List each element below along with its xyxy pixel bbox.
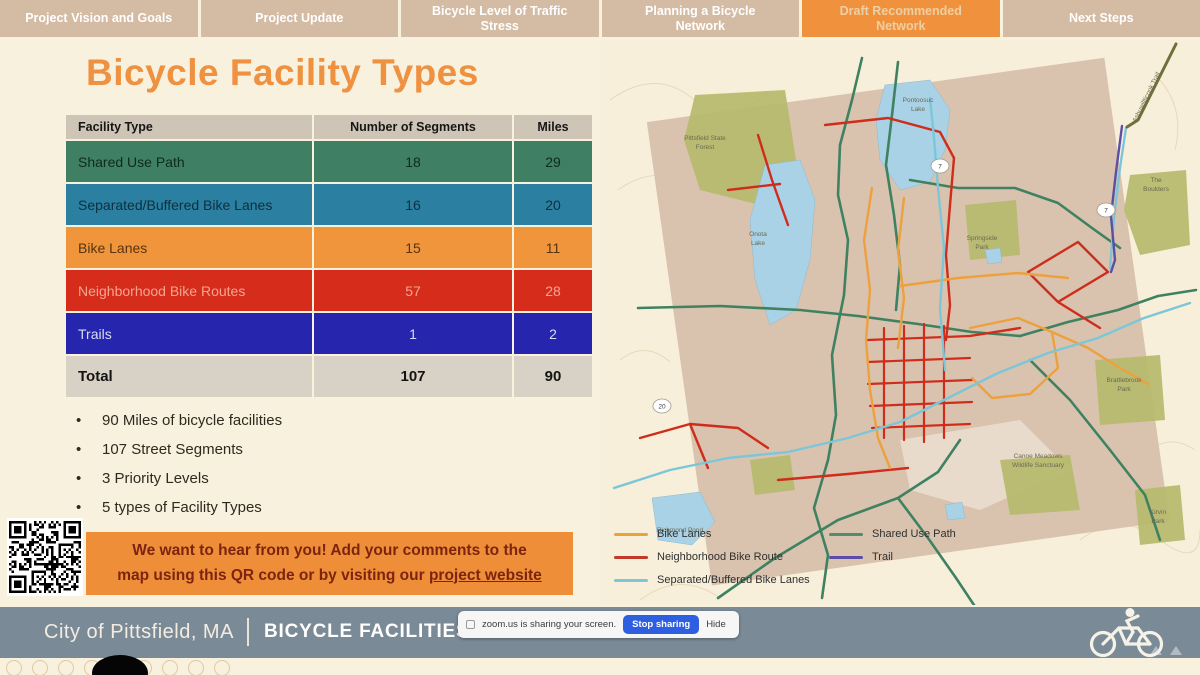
miles-value: 20	[514, 184, 592, 225]
legend-label: Trail	[872, 551, 893, 563]
map-place-label: Pittsfield State	[684, 135, 726, 142]
map-place-label: Lake	[911, 106, 925, 113]
facility-label: Bike Lanes	[66, 227, 312, 268]
miles-value: 29	[514, 141, 592, 182]
legend-label: Bike Lanes	[657, 528, 711, 540]
legend-label: Shared Use Path	[872, 528, 956, 540]
qr-code	[7, 518, 83, 596]
feedback-callout: We want to hear from you! Add your comme…	[86, 532, 573, 595]
table-row: Separated/Buffered Bike Lanes 16 20	[66, 184, 592, 225]
legend-swatch-shared-use-path	[829, 533, 863, 536]
legend-label: Neighborhood Bike Route	[657, 551, 783, 563]
tab-bicycle-level-of-traffic-stress[interactable]: Bicycle Level of Traffic Stress	[401, 0, 599, 37]
callout-line1: We want to hear from you! Add your comme…	[132, 539, 526, 563]
screen-share-icon	[466, 620, 475, 629]
legend-label: Separated/Buffered Bike Lanes	[657, 574, 810, 586]
bicycle-network-map: 7720Pittsfield StateForestPontoosucLakeO…	[600, 40, 1200, 605]
hide-banner-button[interactable]: Hide	[706, 619, 726, 630]
legend-item: Bike Lanes	[614, 528, 829, 540]
map-place-label: Forest	[696, 144, 715, 151]
tab-draft-recommended-network[interactable]: Draft Recommended Network	[802, 0, 1000, 37]
footer-city-name: City of Pittsfield, MA	[44, 621, 234, 644]
table-header-row: Facility Type Number of Segments Miles	[66, 115, 592, 139]
map-place-label: Park	[1151, 518, 1165, 525]
bullet-item: 3 Priority Levels	[76, 470, 282, 487]
route-shield-number: 7	[1104, 207, 1108, 214]
slide-nav-tabbar: Project Vision and Goals Project Update …	[0, 0, 1200, 37]
tab-planning-a-bicycle-network[interactable]: Planning a Bicycle Network	[602, 0, 800, 37]
tab-project-vision-and-goals[interactable]: Project Vision and Goals	[0, 0, 198, 37]
callout-line2: map using this QR code or by visiting ou…	[117, 564, 542, 588]
park-small-park-sw	[750, 455, 795, 495]
column-header-miles: Miles	[514, 115, 592, 139]
column-header-number-of-segments: Number of Segments	[314, 115, 512, 139]
total-segments-value: 107	[314, 356, 512, 397]
legend-item: Separated/Buffered Bike Lanes	[614, 574, 829, 586]
tab-next-steps[interactable]: Next Steps	[1003, 0, 1200, 37]
map-place-label: Canoe Meadows	[1014, 453, 1064, 460]
miles-value: 2	[514, 313, 592, 354]
qr-code-image	[9, 520, 81, 594]
column-header-facility-type: Facility Type	[66, 115, 312, 139]
map-place-label: Springside	[967, 235, 998, 242]
segments-value: 1	[314, 313, 512, 354]
project-website-link[interactable]: project website	[429, 567, 542, 584]
table-row: Neighborhood Bike Routes 57 28	[66, 270, 592, 311]
facility-types-table: Facility Type Number of Segments Miles S…	[64, 113, 594, 399]
legend-swatch-separated-buffered	[614, 579, 648, 582]
map-place-label: Lake	[751, 240, 765, 247]
total-label: Total	[66, 356, 312, 397]
map-place-label: Wildlife Sanctuary	[1012, 462, 1065, 469]
facility-label: Shared Use Path	[66, 141, 312, 182]
bicycle-rider-icon	[1086, 608, 1174, 658]
map-legend: Bike Lanes Neighborhood Bike Route Separ…	[614, 528, 1174, 586]
route-shield-number: 7	[938, 163, 942, 170]
legend-swatch-trail	[829, 556, 863, 559]
legend-item: Trail	[829, 551, 956, 563]
footer-divider	[247, 618, 249, 646]
page-title: Bicycle Facility Types	[86, 52, 479, 94]
segments-value: 16	[314, 184, 512, 225]
legend-swatch-neighborhood-bike-route	[614, 556, 648, 559]
table-row: Bike Lanes 15 11	[66, 227, 592, 268]
map-place-label: The	[1150, 177, 1162, 184]
ghost-icon	[32, 660, 48, 675]
bullet-item: 107 Street Segments	[76, 441, 282, 458]
table-row: Trails 1 2	[66, 313, 592, 354]
map-place-label: Park	[1117, 386, 1131, 393]
facility-label: Trails	[66, 313, 312, 354]
map-image: 7720Pittsfield StateForestPontoosucLakeO…	[600, 40, 1200, 605]
bullet-item: 90 Miles of bicycle facilities	[76, 412, 282, 429]
segments-value: 15	[314, 227, 512, 268]
zoom-sharing-banner: zoom.us is sharing your screen. Stop sha…	[458, 611, 739, 638]
ghost-icon	[162, 660, 178, 675]
facility-label: Neighborhood Bike Routes	[66, 270, 312, 311]
map-place-label: Onota	[749, 231, 767, 238]
map-place-label: Brattlebrook	[1106, 377, 1142, 384]
ghost-icon	[214, 660, 230, 675]
segments-value: 57	[314, 270, 512, 311]
total-miles-value: 90	[514, 356, 592, 397]
ghost-icon	[58, 660, 74, 675]
ghost-icon	[6, 660, 22, 675]
route-shield-number: 20	[658, 403, 666, 410]
sharing-message: zoom.us is sharing your screen.	[482, 619, 616, 630]
legend-swatch-bike-lanes	[614, 533, 648, 536]
stop-sharing-button[interactable]: Stop sharing	[623, 615, 699, 634]
map-place-label: Kirvin	[1150, 509, 1167, 516]
map-place-label: Pontoosuc	[903, 97, 934, 104]
map-place-label: Park	[975, 244, 989, 251]
bullet-item: 5 types of Facility Types	[76, 499, 282, 516]
tab-project-update[interactable]: Project Update	[201, 0, 399, 37]
lake-pond-small-2	[945, 502, 965, 520]
map-place-label: Boulders	[1143, 186, 1169, 193]
miles-value: 11	[514, 227, 592, 268]
legend-item: Shared Use Path	[829, 528, 956, 540]
table-row: Shared Use Path 18 29	[66, 141, 592, 182]
summary-bullet-list: 90 Miles of bicycle facilities 107 Stree…	[76, 412, 282, 528]
facility-label: Separated/Buffered Bike Lanes	[66, 184, 312, 225]
legend-item: Neighborhood Bike Route	[614, 551, 829, 563]
miles-value: 28	[514, 270, 592, 311]
table-total-row: Total 107 90	[66, 356, 592, 397]
ghost-icon	[188, 660, 204, 675]
segments-value: 18	[314, 141, 512, 182]
